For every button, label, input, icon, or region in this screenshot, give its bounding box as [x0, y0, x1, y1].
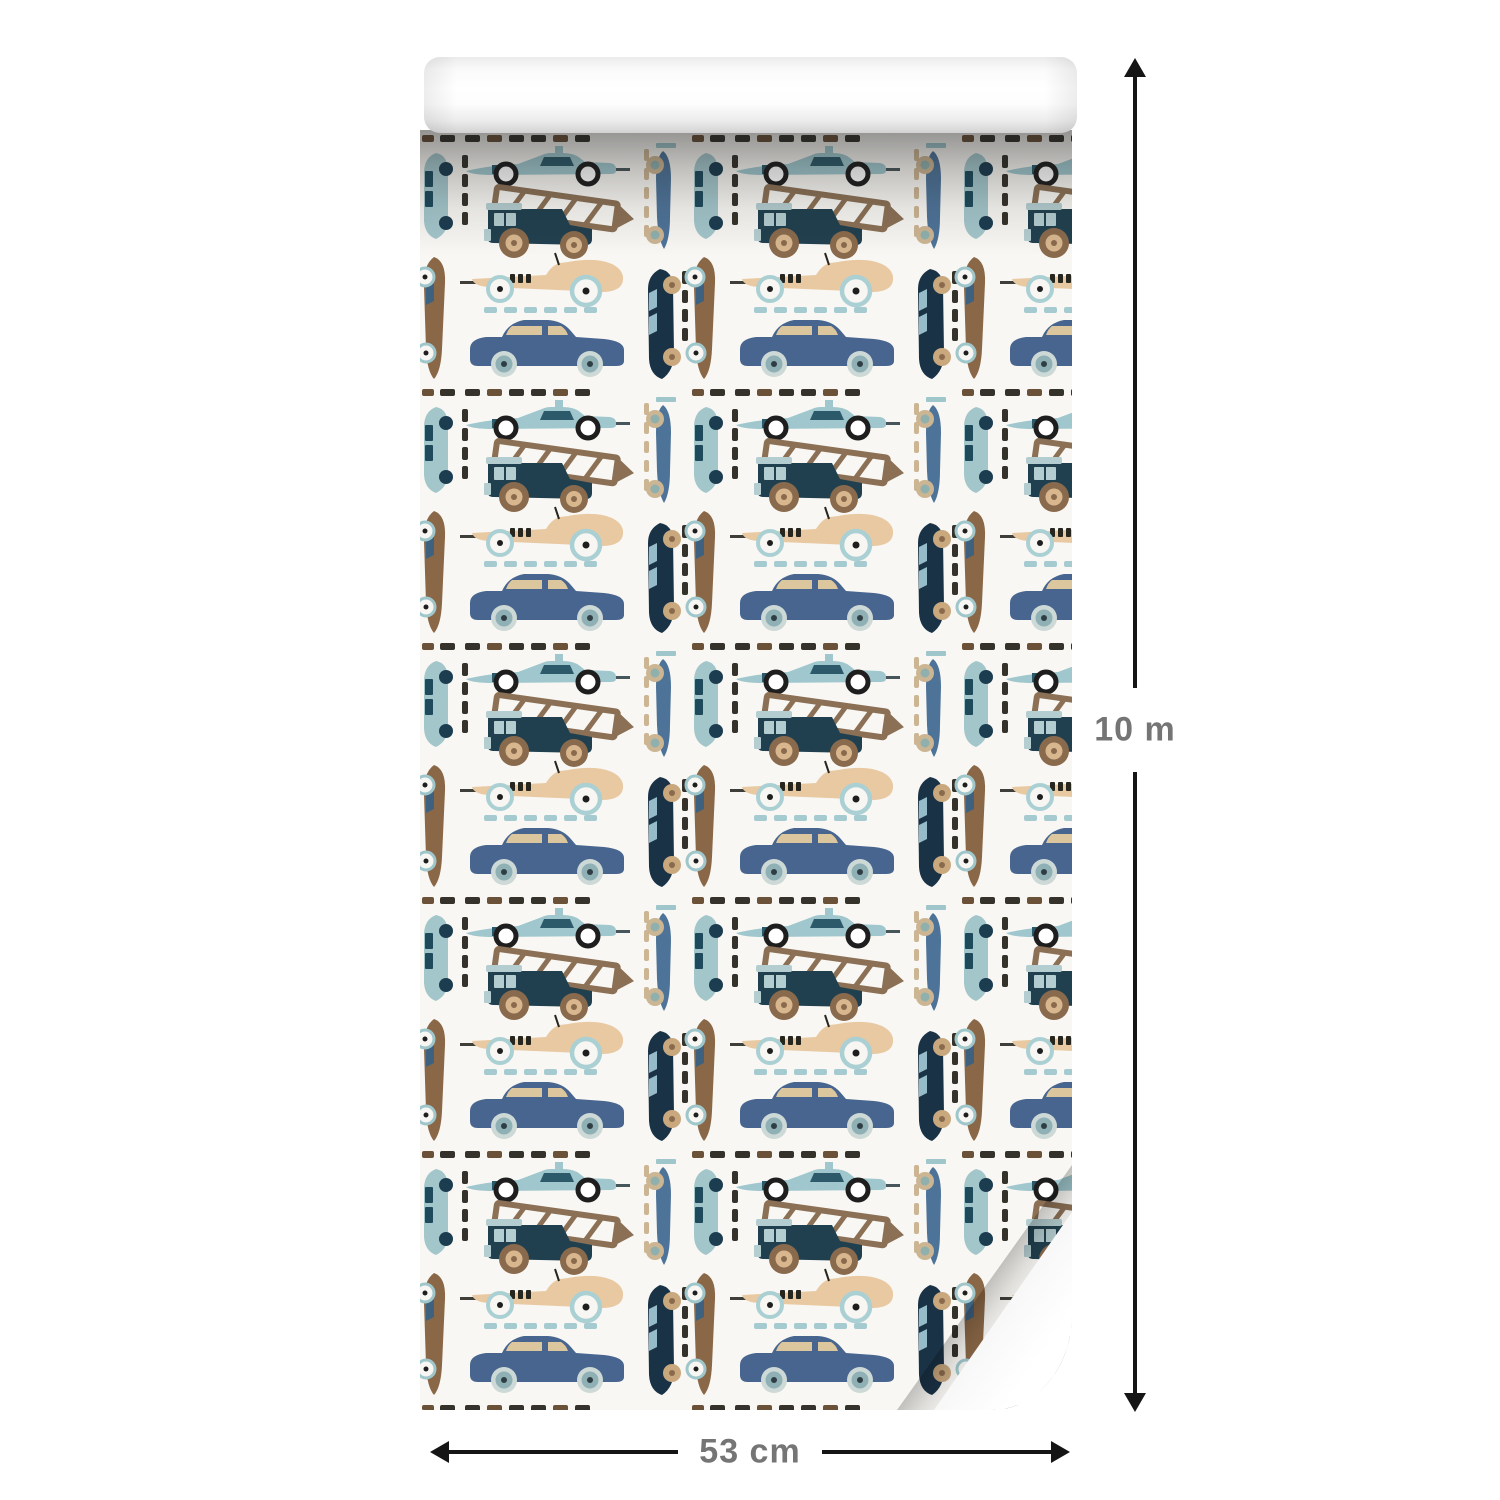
arrow-down-icon: [1124, 1393, 1146, 1412]
arrow-right-icon: [1051, 1441, 1070, 1463]
wallpaper-roll-tube: [424, 57, 1077, 133]
dimension-line: [822, 1450, 1054, 1454]
wallpaper-pattern: [420, 130, 1072, 1410]
pattern-fill: [420, 130, 1072, 1410]
length-dimension: 10 m: [1124, 58, 1146, 1412]
dimension-line: [1133, 772, 1137, 1394]
width-dimension: 53 cm: [430, 1441, 1070, 1463]
product-image: 10 m 53 cm: [0, 0, 1500, 1500]
wallpaper-sheet: [420, 130, 1072, 1410]
width-dimension-label: 53 cm: [699, 1433, 800, 1472]
length-dimension-label: 10 m: [1094, 711, 1176, 750]
dimension-line: [446, 1450, 678, 1454]
dimension-line: [1133, 74, 1137, 688]
